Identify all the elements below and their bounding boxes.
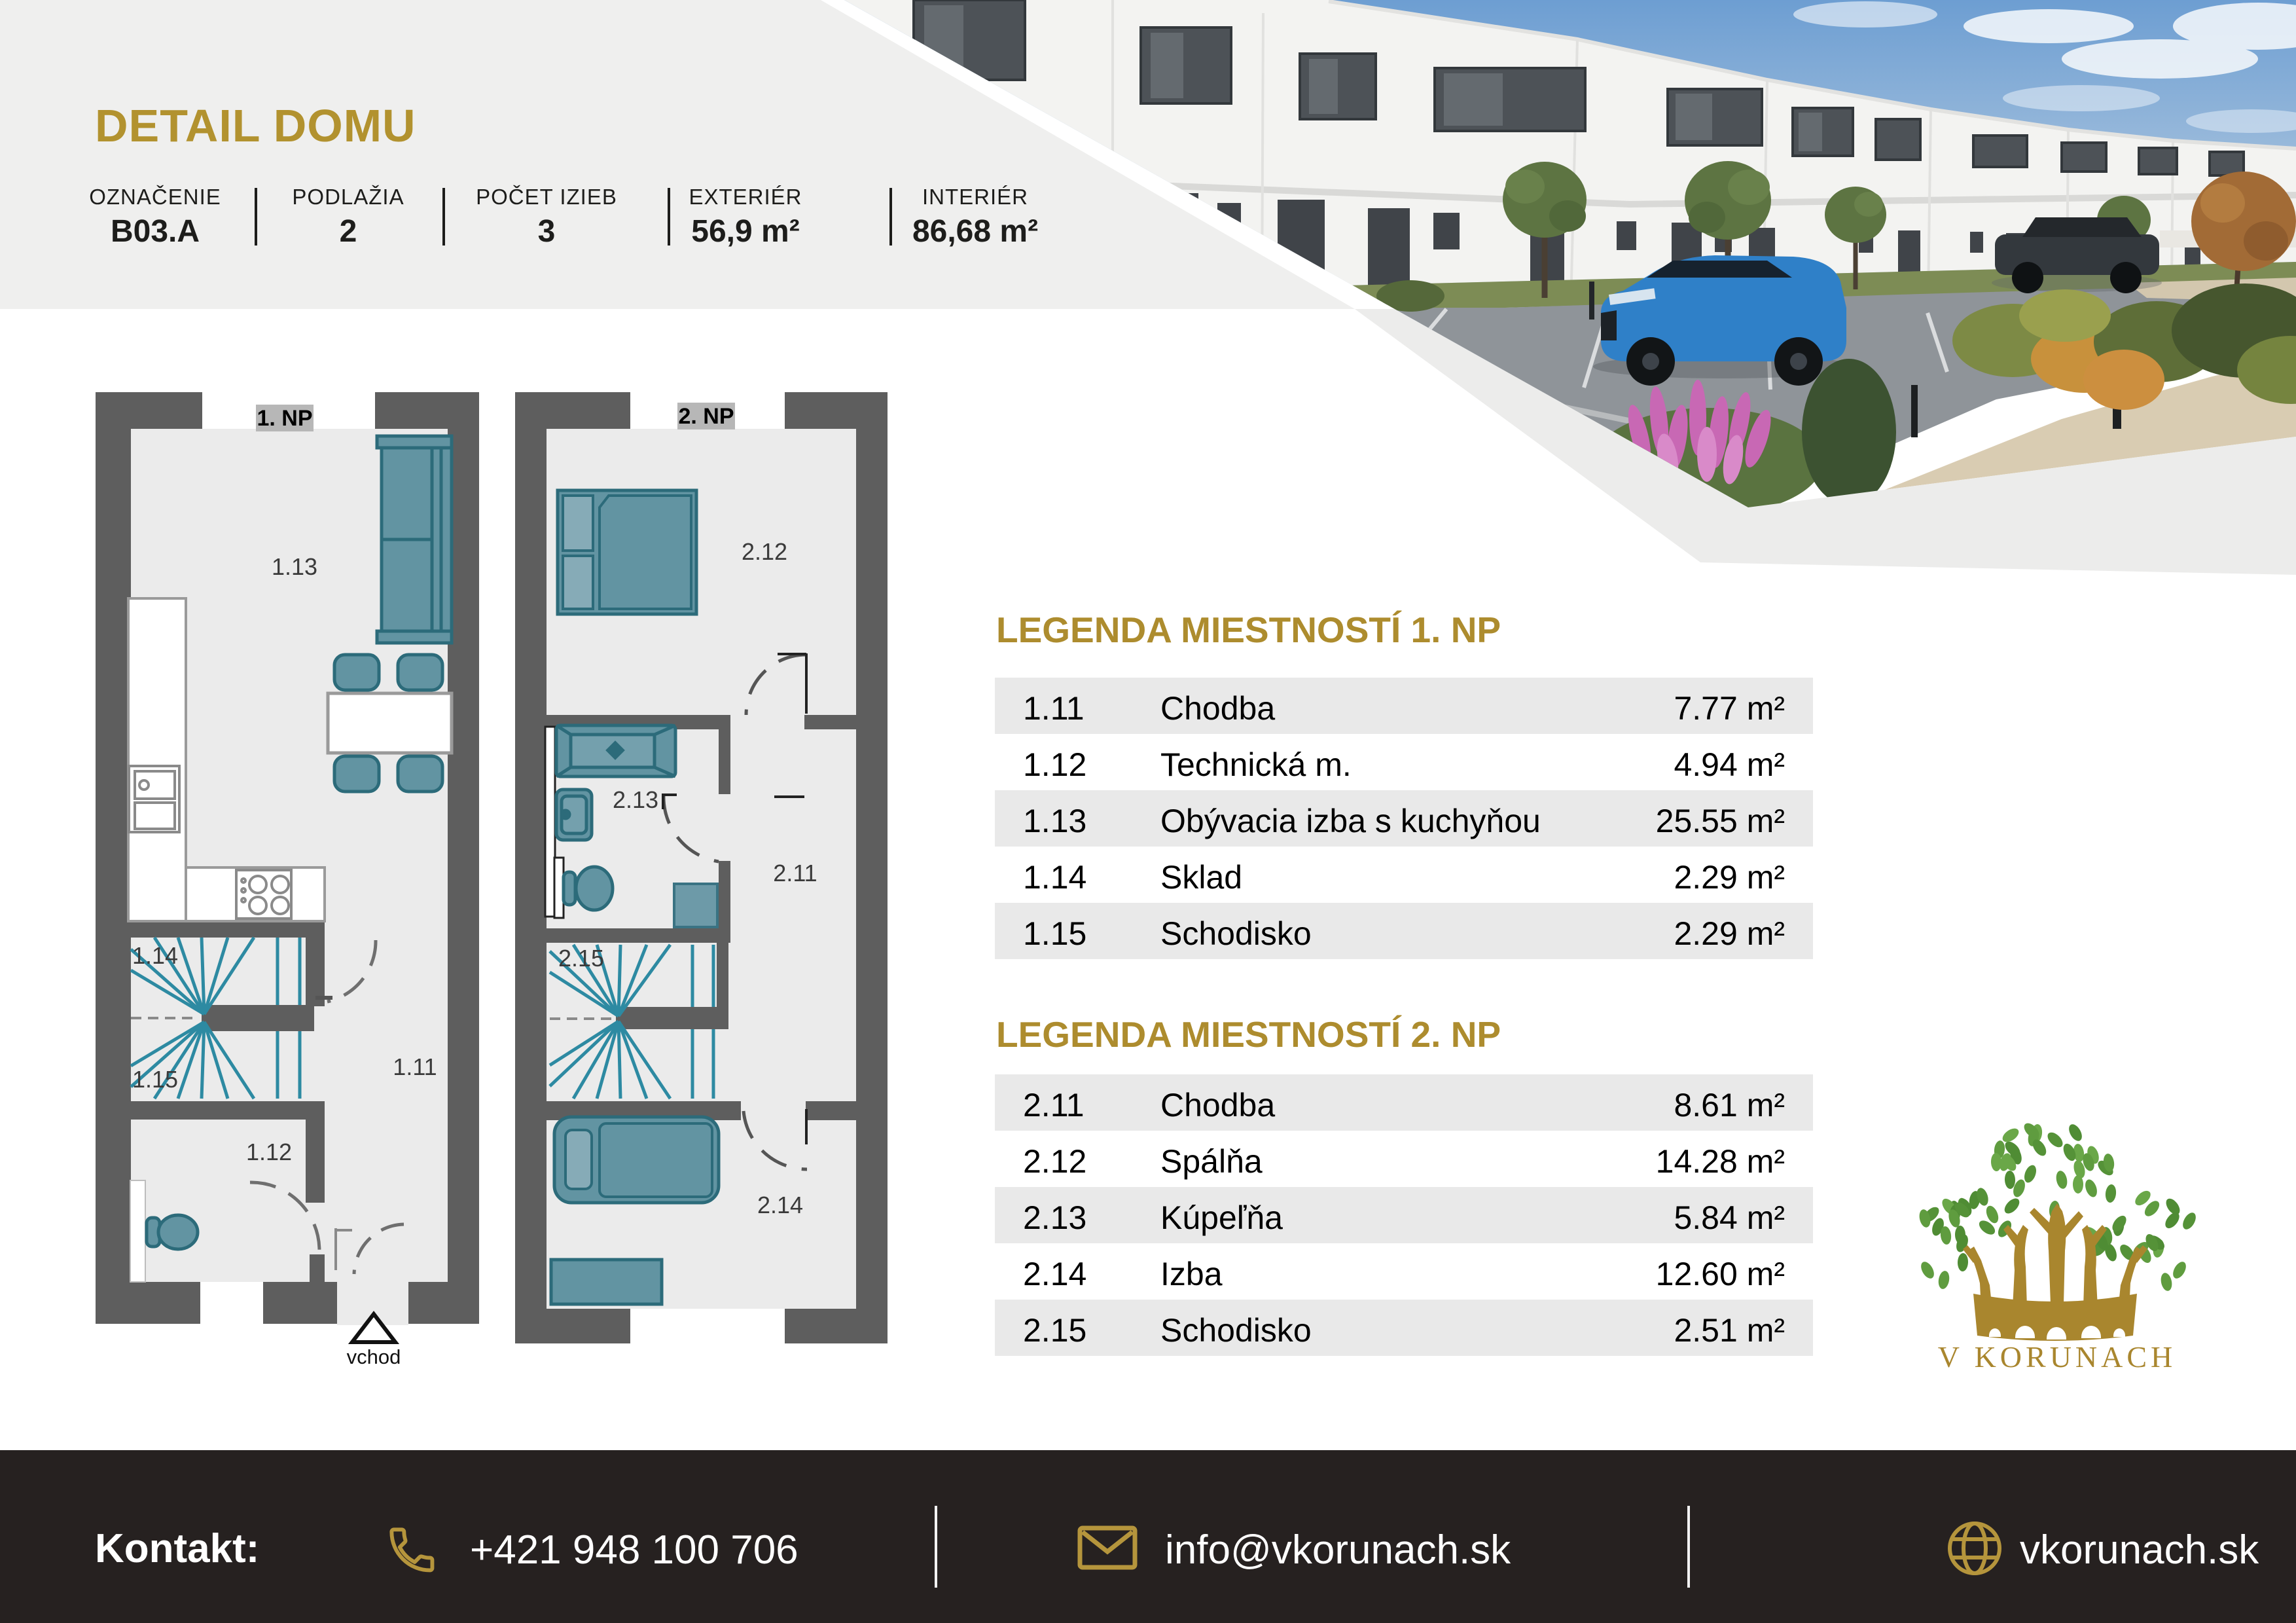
svg-text:1.13: 1.13	[272, 553, 317, 580]
svg-text:2.11: 2.11	[773, 860, 817, 886]
svg-text:1.15: 1.15	[132, 1066, 178, 1093]
svg-text:1.12: 1.12	[246, 1139, 292, 1165]
svg-text:1.11: 1.11	[393, 1053, 437, 1080]
svg-text:2.13: 2.13	[613, 786, 658, 813]
svg-text:2.14: 2.14	[757, 1192, 803, 1218]
svg-text:2. NP: 2. NP	[678, 404, 734, 429]
svg-text:vchod: vchod	[347, 1345, 401, 1368]
svg-text:V KORUNACH: V KORUNACH	[1938, 1340, 2177, 1374]
svg-text:2.15: 2.15	[558, 945, 604, 972]
svg-text:1. NP: 1. NP	[257, 406, 312, 431]
svg-text:1.14: 1.14	[132, 942, 178, 969]
svg-text:2.12: 2.12	[742, 538, 787, 565]
